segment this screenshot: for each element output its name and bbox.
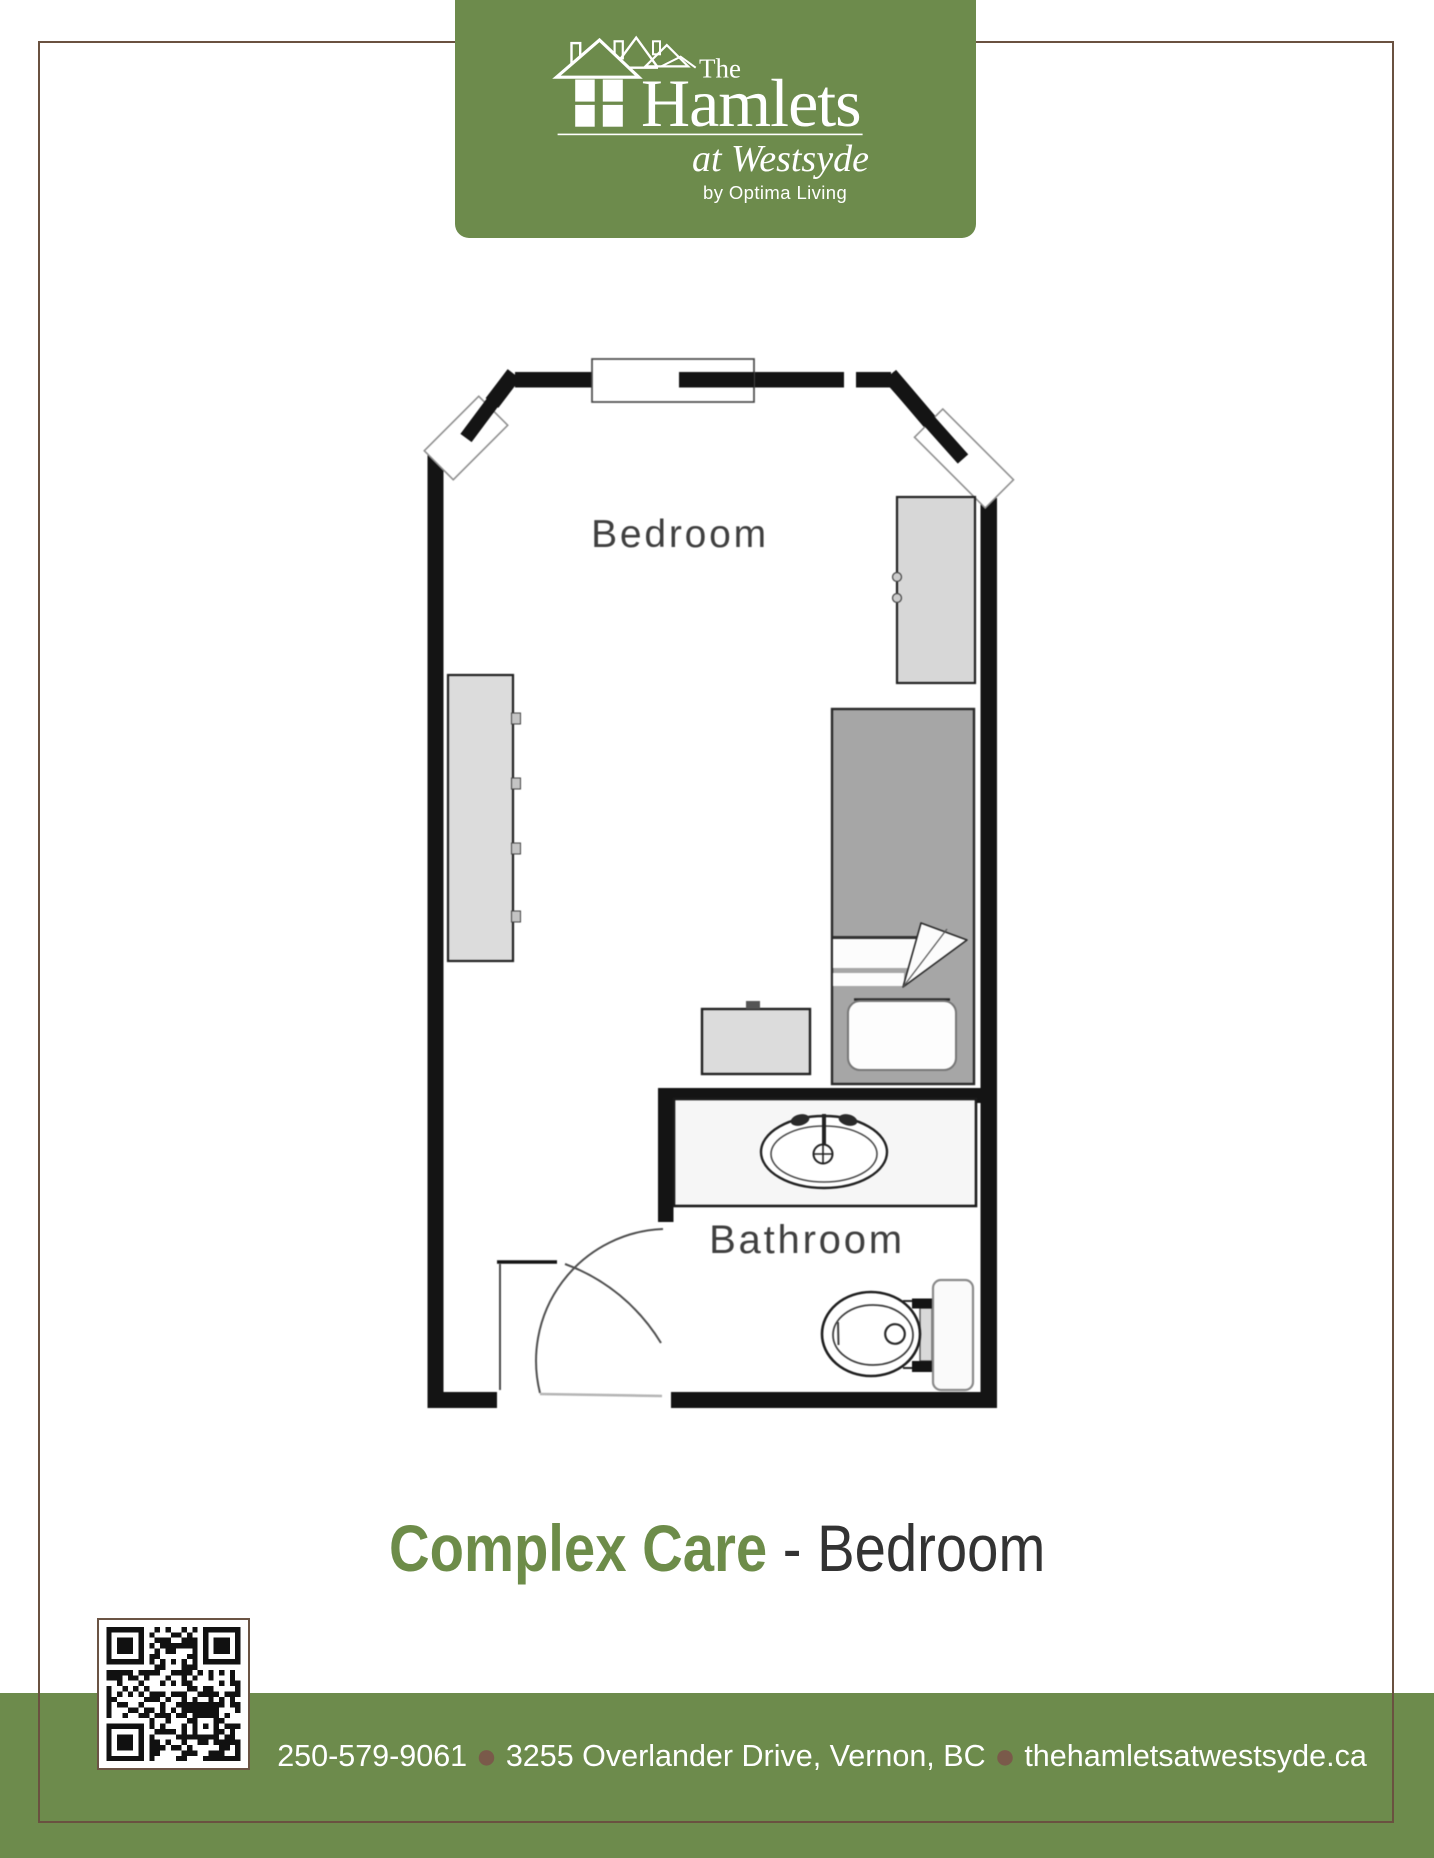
- svg-text:at Westsyde: at Westsyde: [692, 138, 869, 180]
- svg-text:by Optima Living: by Optima Living: [703, 182, 847, 203]
- svg-text:Hamlets: Hamlets: [641, 65, 861, 141]
- svg-text:Bedroom: Bedroom: [591, 513, 769, 556]
- svg-text:Bathroom: Bathroom: [709, 1218, 905, 1262]
